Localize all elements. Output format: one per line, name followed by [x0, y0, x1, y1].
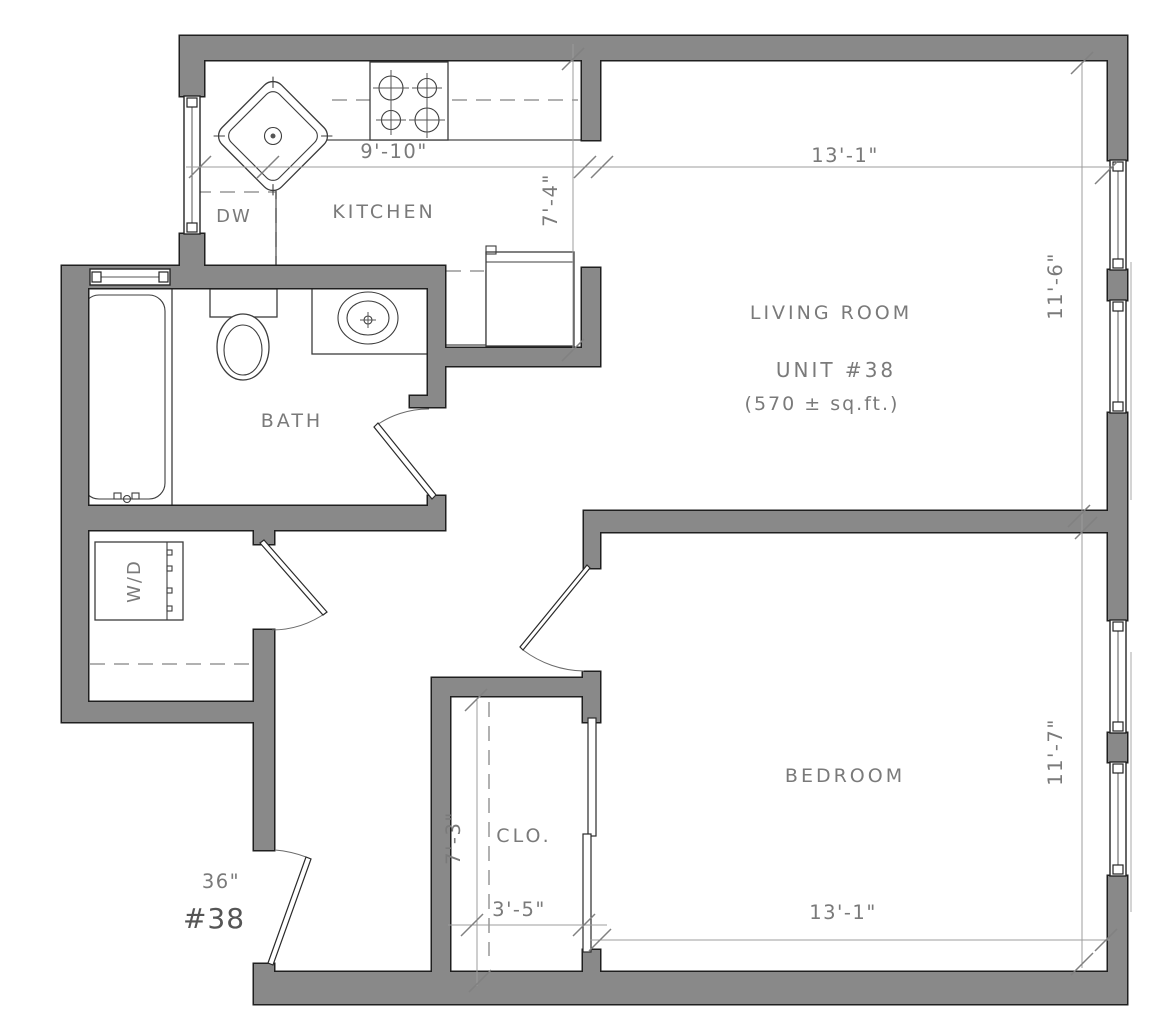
- unit-number-label: #38: [183, 902, 245, 935]
- bath-window: [90, 269, 170, 285]
- washer-dryer-label: W/D: [124, 559, 145, 603]
- bedroom-window-2: [1110, 762, 1126, 876]
- bedroom-width-dim: 13'-1": [809, 901, 877, 924]
- closet-bifold-doors: [583, 718, 596, 952]
- bedroom-depth-dim: 11'-7": [1044, 718, 1067, 786]
- entry-door-width-label: 36": [202, 870, 240, 893]
- closet-label: CLO.: [496, 825, 551, 847]
- unit-title: UNIT #38: [776, 358, 896, 382]
- bath-label: BATH: [261, 410, 323, 432]
- living-room-window-2: [1110, 300, 1126, 413]
- closet-width-dim: 3'-5": [492, 898, 546, 921]
- kitchen-width-dim: 9'-10": [360, 140, 428, 163]
- bathtub: [76, 288, 172, 506]
- bedroom-window-1: [1110, 620, 1126, 733]
- bath-sink: [312, 288, 430, 354]
- dishwasher-label: DW: [216, 206, 252, 227]
- dishwasher-dashed-outline: [196, 192, 276, 266]
- unit-area: (570 ± sq.ft.): [745, 393, 900, 415]
- walls-fill: [62, 36, 1127, 1004]
- floor-plan: KITCHEN DW 9'-10" 7'-4" 13'-1" LIVING RO…: [0, 0, 1170, 1022]
- kitchen-window: [184, 96, 200, 234]
- kitchen-label: KITCHEN: [332, 201, 435, 223]
- toilet: [210, 289, 277, 380]
- kitchen-depth-dim: 7'-4": [539, 173, 562, 227]
- bath-door: [374, 409, 436, 499]
- living-room-width-dim: 13'-1": [811, 144, 879, 167]
- living-room-window-1: [1110, 160, 1126, 270]
- kitchen-sink: [214, 77, 333, 196]
- refrigerator: [486, 246, 574, 346]
- bath-fixtures: [76, 288, 430, 506]
- bedroom-door: [520, 565, 590, 671]
- floor-plan-svg: KITCHEN DW 9'-10" 7'-4" 13'-1" LIVING RO…: [0, 0, 1170, 1022]
- closet-depth-dim: 7'-3": [442, 811, 465, 865]
- entry-door: [268, 850, 311, 965]
- living-room-label: LIVING ROOM: [750, 302, 912, 324]
- stove: [370, 62, 448, 140]
- bedroom-label: BEDROOM: [785, 765, 905, 787]
- laundry-door: [260, 540, 327, 630]
- living-room-depth-dim: 11'-6": [1044, 252, 1067, 320]
